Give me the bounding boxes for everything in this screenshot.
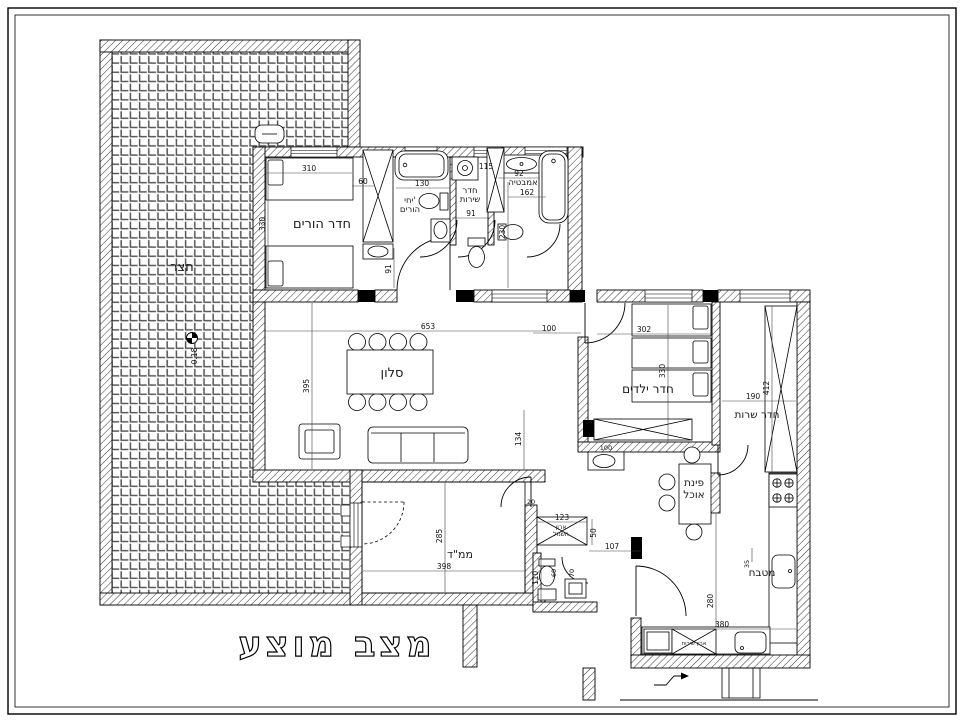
dim-label: 100 [542, 324, 557, 333]
dim-label: 123 [555, 513, 570, 522]
sofa-symbol [368, 427, 468, 463]
closet-symbol [487, 148, 504, 212]
dim-label: 330 [258, 217, 267, 232]
dim-label: 100 [600, 444, 612, 452]
floor-plan-canvas: 310 60 330 130 115 91 92 162 230 91 653 … [0, 0, 964, 722]
armchair-symbol [299, 424, 340, 459]
wall-apartment-left [253, 147, 265, 482]
room-label-utility: חדר שרות [735, 409, 780, 421]
level-marker [187, 333, 198, 344]
wall-courtyard-right [348, 40, 360, 147]
dim-label: 412 [762, 381, 771, 396]
dim-label: 285 [435, 529, 444, 544]
sink-symbol [588, 452, 624, 470]
room-label-kids: חדר ילדים [622, 382, 674, 396]
dim-label: 70 [568, 569, 576, 577]
wall-porch-left [583, 668, 595, 700]
dim-label: 130 [415, 179, 430, 188]
bidet-symbol [431, 219, 450, 242]
dim-label: 60 [550, 569, 558, 577]
wall-bath-right [568, 147, 582, 302]
dishwasher-symbol [644, 629, 672, 653]
courtyard-tiles-lower [253, 482, 350, 593]
dim-label: 380 [715, 620, 730, 629]
bed-symbol [632, 338, 711, 368]
wall-dining-right [710, 473, 720, 513]
washing-machine-symbol [452, 157, 478, 180]
room-label-kitchen: מטבח [749, 567, 776, 579]
wall-bottom-right [631, 655, 810, 668]
sink-symbol [363, 244, 393, 259]
level-label: 0.18 [190, 347, 199, 364]
wall-wc-bottom [533, 602, 597, 612]
dim-label: 162 [520, 188, 535, 197]
service-closet-label: ארון שירות [682, 641, 707, 647]
dim-label: 230 [498, 225, 507, 240]
room-label-wc-top: שירות [460, 195, 481, 205]
window [291, 147, 337, 157]
dim-label: 107 [605, 542, 620, 551]
dim-label: 91 [384, 264, 393, 274]
dim-label: 134 [514, 432, 523, 447]
wardrobe-symbol [363, 150, 393, 242]
closet-label: חשמל [553, 531, 569, 538]
wall-outer-right [797, 302, 810, 662]
wall-outer-bottom [100, 593, 545, 605]
plan-title: מצב מוצע [238, 625, 435, 665]
room-label-living: סלון [381, 366, 404, 381]
toilet-symbol [468, 238, 485, 268]
window [740, 290, 790, 302]
dim-label: 395 [302, 379, 311, 394]
room-label-courtyard: חצר [170, 260, 194, 275]
dim-label: 653 [421, 322, 436, 331]
closet-label: ארון [556, 524, 567, 531]
dim-label: 398 [437, 562, 452, 571]
dim-label: 190 [746, 392, 761, 401]
kitchen-sink-symbol [735, 632, 766, 653]
room-label-dining: אוכל [683, 489, 704, 501]
room-label-parents-unit: הורים [400, 205, 420, 215]
wall-outer-top [100, 40, 360, 52]
room-label-bath: אמבטיה [508, 178, 537, 188]
wall-living-bottom [253, 470, 545, 482]
bed-symbol [266, 246, 353, 288]
dim-label: 330 [658, 364, 667, 379]
room-label-mamad: ממ"ד [447, 548, 473, 561]
dim-label: 20 [527, 498, 535, 506]
dim-label: 60 [358, 177, 368, 186]
stove-symbol [769, 474, 797, 507]
wall-utility-left [712, 302, 720, 445]
shower-symbol [565, 579, 586, 598]
dim-label: 92 [514, 169, 524, 178]
bathtub-symbol [539, 151, 568, 223]
room-label-dining: פינת [684, 477, 704, 489]
wall-stub-bottom [463, 605, 477, 667]
kitchen-sink-symbol [772, 555, 795, 588]
dim-label: 91 [466, 209, 476, 218]
dim-label: 110 [531, 571, 540, 586]
wall-outer-left [100, 40, 112, 605]
wardrobe-symbol [594, 419, 692, 440]
window [492, 290, 547, 302]
dim-label: 115 [479, 162, 494, 171]
window [645, 290, 692, 302]
dim-label: 280 [706, 594, 715, 609]
bathtub-symbol [395, 151, 448, 180]
room-label-parents: חדר הורים [293, 217, 351, 232]
toilet-symbol [419, 193, 448, 210]
dim-label: 302 [637, 325, 652, 334]
dim-label: 50 [589, 528, 598, 538]
dim-label: 310 [302, 164, 317, 173]
